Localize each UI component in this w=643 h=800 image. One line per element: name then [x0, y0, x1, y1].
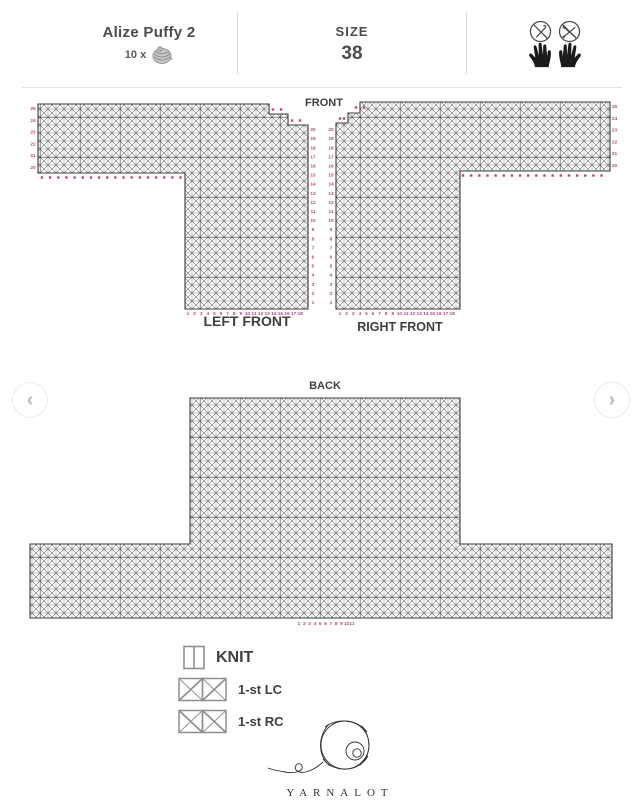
svg-text:18: 18 [450, 311, 456, 317]
svg-text:3: 3 [312, 282, 315, 288]
svg-text:6: 6 [372, 311, 375, 317]
svg-text:8: 8 [312, 236, 315, 242]
svg-text:21: 21 [30, 153, 36, 159]
svg-text:13: 13 [310, 191, 316, 197]
svg-text:14: 14 [310, 182, 316, 188]
chevron-left-icon: ‹ [27, 390, 34, 410]
svg-text:5: 5 [312, 264, 315, 270]
svg-text:12: 12 [410, 311, 416, 317]
svg-text:24: 24 [30, 118, 36, 124]
svg-text:2: 2 [330, 291, 333, 297]
svg-text:17: 17 [291, 311, 297, 317]
next-chart-button[interactable]: › [594, 382, 630, 418]
yarn-info: Alize Puffy 2 10 x [60, 10, 238, 78]
svg-text:18: 18 [298, 311, 304, 317]
brand-logo: YARNALOT [262, 714, 412, 799]
svg-text:9: 9 [340, 621, 343, 627]
left-hand-icon [527, 41, 554, 68]
svg-text:11: 11 [349, 621, 354, 627]
svg-text:16: 16 [310, 164, 316, 170]
svg-text:11: 11 [403, 311, 408, 317]
svg-text:6: 6 [312, 255, 315, 261]
legend-label: 1-st LC [238, 682, 282, 697]
svg-text:16: 16 [284, 311, 290, 317]
svg-text:16: 16 [328, 164, 334, 170]
svg-text:11: 11 [310, 209, 315, 215]
svg-text:15: 15 [430, 311, 436, 317]
yarn-count: 10 x [125, 49, 146, 61]
svg-text:8: 8 [385, 311, 388, 317]
svg-text:12: 12 [258, 311, 264, 317]
svg-text:3: 3 [330, 282, 333, 288]
svg-text:7: 7 [226, 311, 229, 317]
right-front-label: RIGHT FRONT [357, 320, 443, 334]
size-value: 38 [341, 43, 362, 65]
brand-name: YARNALOT [262, 787, 412, 799]
svg-text:15: 15 [278, 311, 284, 317]
svg-text:9: 9 [391, 311, 394, 317]
svg-text:17: 17 [310, 154, 316, 160]
svg-text:10: 10 [328, 218, 334, 224]
chevron-right-icon: › [609, 390, 616, 410]
svg-text:5: 5 [365, 311, 368, 317]
svg-text:6: 6 [330, 255, 333, 261]
svg-text:12: 12 [328, 200, 334, 206]
legend-item-knit: KNIT [178, 645, 284, 670]
svg-text:4: 4 [314, 621, 317, 627]
svg-text:18: 18 [310, 145, 316, 151]
knitting-charts: FRONT LEFT FRONT RIGHT FRONT BACK 252423… [0, 92, 643, 640]
svg-text:23: 23 [30, 130, 36, 136]
yarn-count-row: 10 x [125, 45, 173, 65]
size-label: SIZE [336, 24, 369, 39]
svg-text:8: 8 [330, 236, 333, 242]
svg-text:23: 23 [612, 128, 618, 134]
svg-text:4: 4 [358, 311, 361, 317]
yarn-name: Alize Puffy 2 [102, 24, 195, 41]
svg-text:2: 2 [303, 621, 306, 627]
yarn-skein-icon [151, 45, 173, 65]
right-hand-icon [556, 41, 583, 68]
prev-chart-button[interactable]: ‹ [12, 382, 48, 418]
legend-item-lc: 1-st LC [178, 677, 284, 702]
svg-text:2: 2 [312, 291, 315, 297]
svg-text:10: 10 [310, 218, 316, 224]
size-info: SIZE 38 [238, 10, 466, 78]
knit-symbol-icon [178, 645, 206, 670]
svg-text:10: 10 [397, 311, 403, 317]
svg-text:1: 1 [330, 300, 333, 306]
pattern-viewer-page: Alize Puffy 2 10 x SIZE 38 [0, 0, 643, 800]
svg-text:6: 6 [220, 311, 223, 317]
svg-text:4: 4 [206, 311, 209, 317]
svg-text:9: 9 [239, 311, 242, 317]
svg-text:3: 3 [308, 621, 311, 627]
svg-text:20: 20 [612, 163, 618, 169]
svg-text:9: 9 [330, 227, 333, 233]
svg-text:14: 14 [423, 311, 429, 317]
svg-text:13: 13 [328, 191, 334, 197]
svg-text:12: 12 [310, 200, 316, 206]
svg-text:25: 25 [612, 104, 618, 110]
svg-text:13: 13 [265, 311, 271, 317]
back-piece-chart [30, 398, 612, 618]
right-cross-symbol-icon [178, 709, 228, 734]
svg-text:4: 4 [312, 273, 315, 279]
svg-text:20: 20 [30, 165, 36, 171]
header-rule [22, 87, 622, 88]
svg-text:13: 13 [417, 311, 423, 317]
svg-text:11: 11 [251, 311, 256, 317]
svg-text:16: 16 [436, 311, 442, 317]
svg-text:1: 1 [312, 300, 315, 306]
svg-text:5: 5 [213, 311, 216, 317]
svg-text:4: 4 [330, 273, 333, 279]
no-crochet-hook-icon [529, 20, 552, 43]
svg-text:5: 5 [319, 621, 322, 627]
svg-text:14: 14 [271, 311, 277, 317]
svg-text:22: 22 [612, 139, 618, 145]
right-front-piece-chart [336, 102, 610, 309]
technique-icons [467, 10, 643, 78]
svg-text:17: 17 [328, 154, 334, 160]
svg-text:7: 7 [329, 621, 332, 627]
svg-text:6: 6 [324, 621, 327, 627]
svg-text:2: 2 [193, 311, 196, 317]
svg-text:7: 7 [312, 245, 315, 251]
svg-text:5: 5 [330, 264, 333, 270]
left-front-piece-chart [38, 104, 308, 309]
svg-text:21: 21 [612, 151, 618, 157]
svg-text:10: 10 [245, 311, 251, 317]
svg-text:24: 24 [612, 116, 618, 122]
svg-text:19: 19 [328, 136, 334, 142]
svg-text:20: 20 [328, 127, 334, 133]
no-knitting-needles-icon [558, 20, 581, 43]
svg-text:3: 3 [200, 311, 203, 317]
front-chart-title: FRONT [305, 97, 343, 109]
svg-text:17: 17 [443, 311, 449, 317]
legend-label: KNIT [216, 649, 253, 667]
svg-text:7: 7 [330, 245, 333, 251]
svg-text:9: 9 [312, 227, 315, 233]
svg-text:11: 11 [328, 209, 333, 215]
svg-text:7: 7 [378, 311, 381, 317]
svg-text:1: 1 [339, 311, 342, 317]
svg-text:8: 8 [233, 311, 236, 317]
svg-text:22: 22 [30, 141, 36, 147]
svg-text:25: 25 [30, 106, 36, 112]
svg-text:1: 1 [298, 621, 301, 627]
svg-text:20: 20 [310, 127, 316, 133]
svg-text:19: 19 [310, 136, 316, 142]
yarn-ball-logo-icon [267, 714, 407, 780]
header: Alize Puffy 2 10 x SIZE 38 [0, 0, 643, 88]
left-cross-symbol-icon [178, 677, 228, 702]
svg-text:3: 3 [352, 311, 355, 317]
svg-text:15: 15 [328, 173, 334, 179]
svg-text:1: 1 [187, 311, 190, 317]
svg-text:14: 14 [328, 182, 334, 188]
svg-text:18: 18 [328, 145, 334, 151]
svg-text:2: 2 [345, 311, 348, 317]
svg-text:8: 8 [335, 621, 338, 627]
svg-text:15: 15 [310, 173, 316, 179]
back-chart-title: BACK [309, 380, 341, 392]
